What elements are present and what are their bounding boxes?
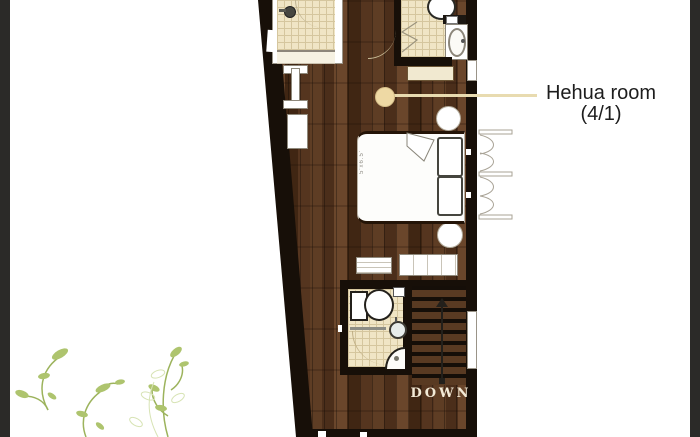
door-opening-left-wall — [266, 30, 277, 53]
shower-room — [272, 0, 343, 64]
leader-line — [393, 94, 537, 97]
shelf-cabinet — [287, 114, 308, 149]
folded-blanket — [406, 131, 436, 163]
vent-marker — [338, 325, 342, 332]
faucet-icon — [461, 39, 465, 43]
page-border-right — [690, 0, 700, 437]
stairs-direction-line — [441, 301, 443, 381]
room-name: Hehua room — [536, 83, 666, 104]
bench — [356, 257, 392, 274]
console-table — [407, 66, 454, 81]
shower-tray — [277, 50, 335, 64]
toilet-icon — [364, 289, 394, 321]
floor-plan-page: Hehua room (4/1) 5'x6.5' — [0, 0, 700, 437]
stairs-down-label: DOWN — [406, 386, 476, 401]
stairs-down-arrow-icon — [436, 298, 448, 307]
bench-foot-of-bed — [399, 254, 458, 276]
wall-bottom-opening — [360, 432, 367, 437]
bed-size-label: 5'x6.5' — [359, 140, 369, 174]
clothes-rack-bar — [283, 100, 308, 109]
room-label: Hehua room (4/1) — [536, 83, 666, 125]
towel-bar — [350, 327, 386, 330]
side-table-bottom — [437, 222, 463, 248]
wall-cabinet — [393, 287, 405, 297]
stairs-line-end — [439, 378, 445, 384]
room-marker-dot — [375, 87, 395, 107]
side-table-top — [436, 106, 461, 131]
bifold-door-icon — [401, 20, 419, 54]
wall-bottom-opening — [318, 431, 326, 437]
room-info: (4/1) — [536, 104, 666, 125]
faucet-icon — [395, 317, 397, 322]
window-marker — [467, 60, 477, 81]
shower-arm-icon — [279, 9, 286, 12]
sink-icon — [445, 24, 468, 60]
bathroom-top-wall-left — [394, 0, 401, 58]
shower-head-icon — [284, 6, 296, 18]
bathroom-top-wall-bottom — [394, 57, 452, 66]
closet-doors-icon — [466, 118, 518, 230]
pillow — [437, 137, 463, 177]
shower-drain — [394, 356, 399, 361]
counter-tray — [446, 16, 458, 24]
plant-decoration — [8, 330, 193, 437]
sink-icon — [389, 321, 407, 339]
pillow — [437, 176, 463, 216]
window-marker — [467, 311, 477, 369]
